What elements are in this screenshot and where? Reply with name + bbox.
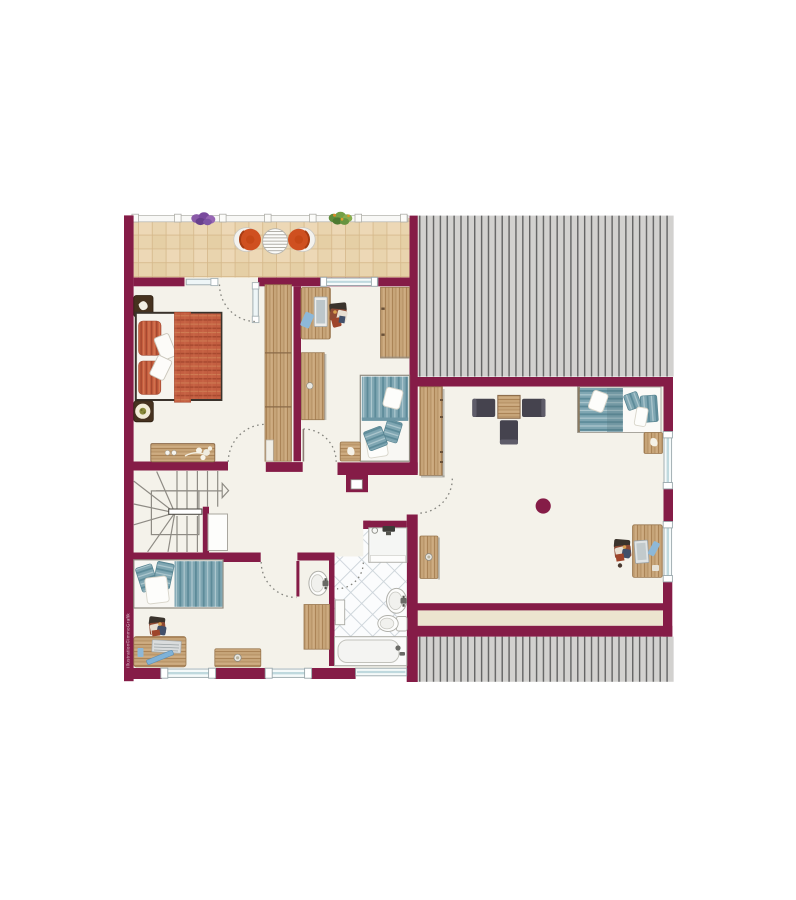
svg-text:Illustration©ImmoGrafik: Illustration©ImmoGrafik: [125, 613, 131, 668]
